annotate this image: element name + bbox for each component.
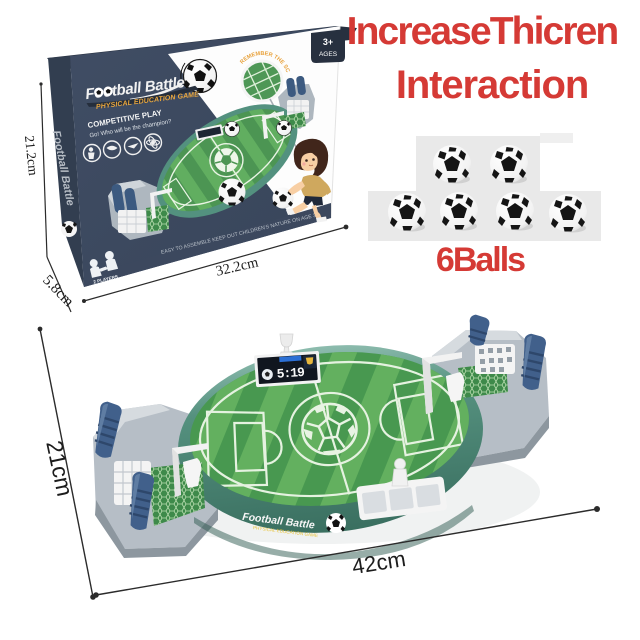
svg-text:3+: 3+ (323, 37, 333, 47)
svg-text:6Balls: 6Balls (436, 241, 525, 279)
svg-text:Interaction: Interaction (396, 63, 588, 107)
svg-text:AGES: AGES (319, 51, 338, 58)
svg-text:IncreaseThicren: IncreaseThicren (347, 10, 618, 53)
svg-text:5:19: 5:19 (276, 365, 305, 382)
